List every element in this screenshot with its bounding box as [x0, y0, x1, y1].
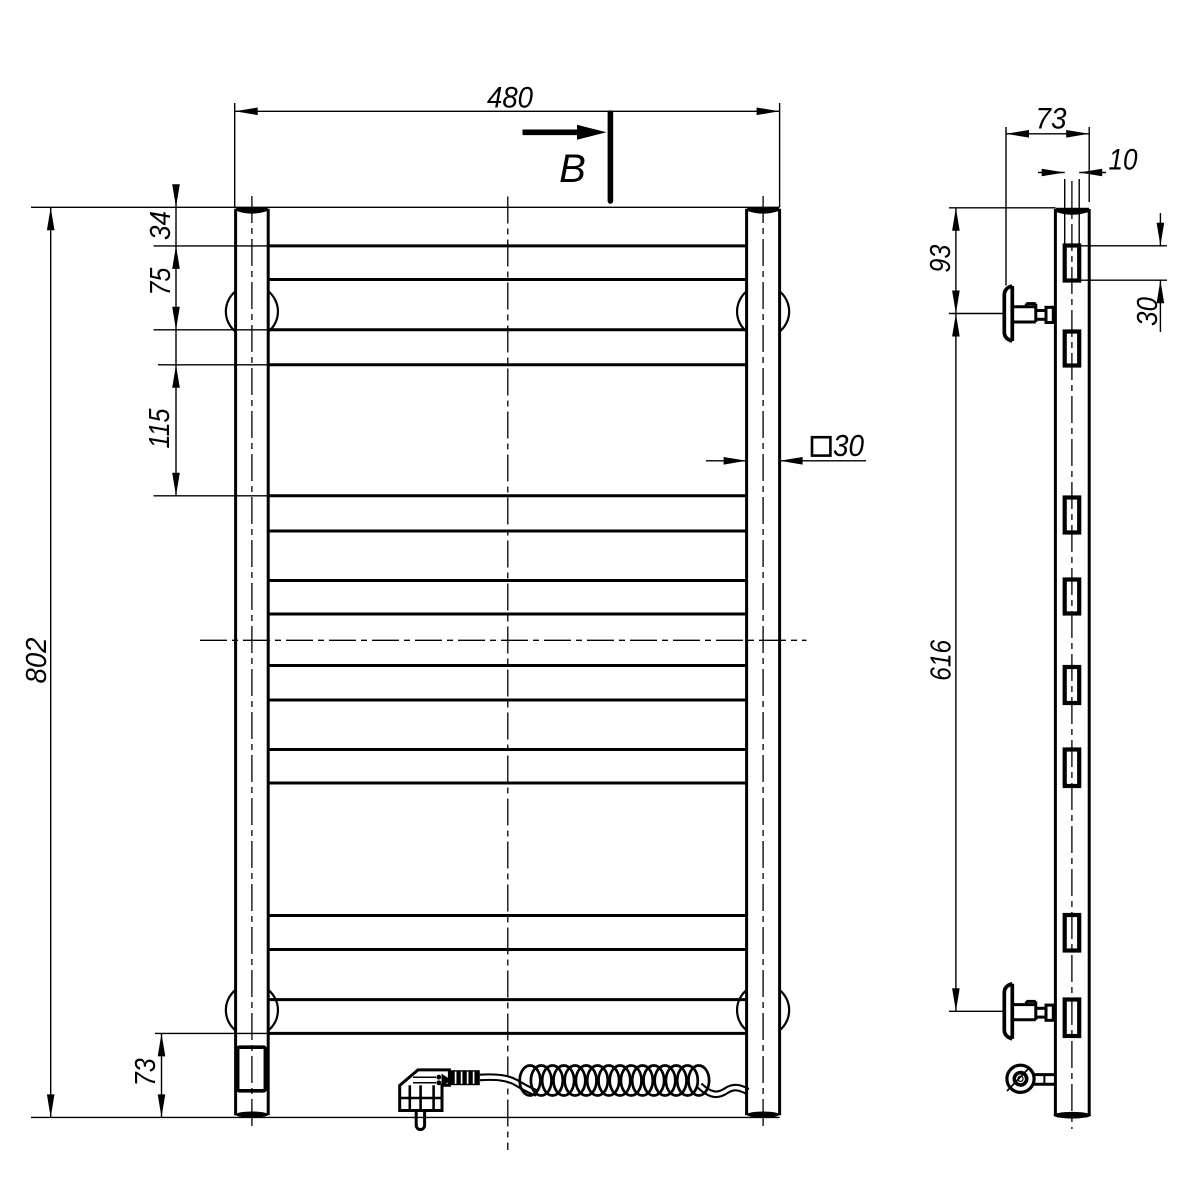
svg-text:30: 30 [833, 428, 864, 463]
svg-text:616: 616 [926, 639, 958, 681]
svg-text:30: 30 [1132, 297, 1164, 326]
svg-text:802: 802 [21, 638, 53, 684]
svg-text:73: 73 [130, 1058, 162, 1086]
svg-text:73: 73 [1036, 103, 1067, 136]
svg-text:480: 480 [487, 82, 533, 115]
svg-text:93: 93 [925, 245, 957, 273]
svg-text:34: 34 [145, 211, 177, 240]
svg-text:10: 10 [1109, 144, 1138, 177]
svg-text:75: 75 [145, 267, 177, 296]
svg-text:115: 115 [144, 408, 176, 449]
svg-text:B: B [559, 147, 586, 191]
